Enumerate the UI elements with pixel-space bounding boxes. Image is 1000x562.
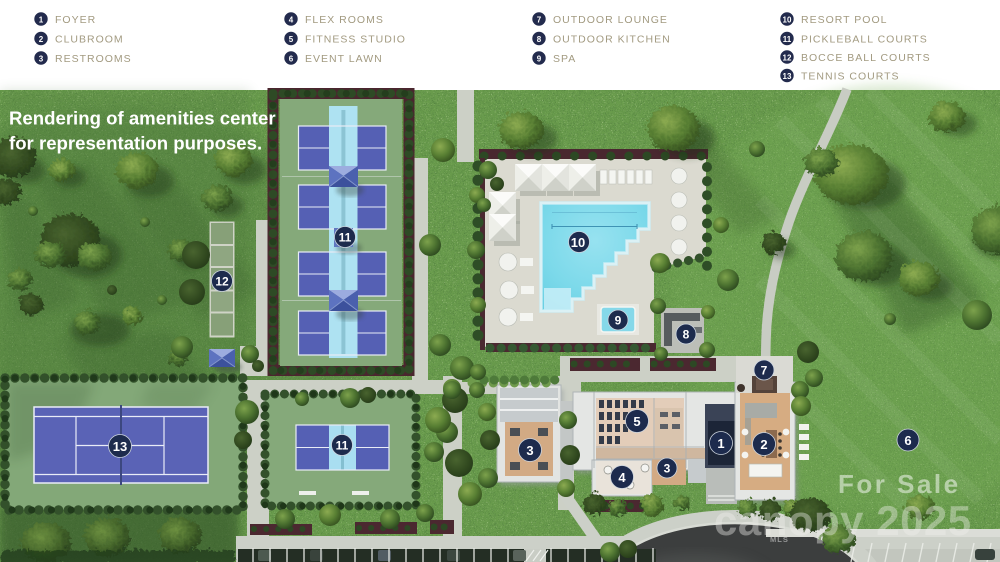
svg-text:Rendering of amenities center: Rendering of amenities center [9, 108, 276, 129]
svg-text:EVENT LAWN: EVENT LAWN [305, 53, 383, 65]
svg-text:9: 9 [615, 314, 622, 328]
svg-text:PICKLEBALL COURTS: PICKLEBALL COURTS [801, 34, 928, 46]
svg-text:4: 4 [618, 470, 626, 485]
svg-text:1: 1 [39, 16, 44, 25]
svg-text:6: 6 [904, 433, 911, 448]
svg-text:11: 11 [336, 439, 349, 453]
svg-text:12: 12 [215, 275, 229, 289]
svg-text:BOCCE BALL COURTS: BOCCE BALL COURTS [801, 52, 931, 64]
svg-text:For Sale: For Sale [838, 469, 961, 499]
svg-text:3: 3 [664, 462, 671, 476]
svg-text:10: 10 [783, 16, 792, 25]
svg-text:7: 7 [537, 16, 542, 25]
svg-text:8: 8 [537, 35, 542, 44]
svg-text:FITNESS STUDIO: FITNESS STUDIO [305, 34, 406, 46]
svg-text:7: 7 [761, 364, 768, 378]
svg-text:13: 13 [113, 439, 127, 454]
svg-text:1: 1 [717, 436, 724, 451]
svg-text:FLEX ROOMS: FLEX ROOMS [305, 14, 384, 26]
svg-text:5: 5 [633, 414, 640, 429]
svg-text:5: 5 [289, 35, 294, 44]
svg-text:2: 2 [39, 35, 44, 44]
svg-text:OUTDOOR KITCHEN: OUTDOOR KITCHEN [553, 34, 671, 46]
svg-text:canopy 2025: canopy 2025 [714, 497, 972, 544]
svg-text:11: 11 [339, 231, 352, 245]
svg-text:3: 3 [526, 443, 533, 458]
svg-text:4: 4 [289, 16, 294, 25]
svg-text:9: 9 [537, 55, 542, 64]
svg-text:3: 3 [39, 55, 44, 64]
svg-text:6: 6 [289, 55, 294, 64]
svg-text:13: 13 [783, 72, 792, 81]
svg-text:CLUBROOM: CLUBROOM [55, 34, 124, 46]
svg-text:FOYER: FOYER [55, 14, 96, 26]
svg-text:10: 10 [571, 235, 585, 250]
svg-text:11: 11 [783, 35, 792, 44]
svg-text:OUTDOOR LOUNGE: OUTDOOR LOUNGE [553, 14, 668, 26]
svg-text:MLS: MLS [770, 535, 789, 544]
svg-text:RESTROOMS: RESTROOMS [55, 53, 132, 65]
svg-text:RESORT POOL: RESORT POOL [801, 14, 887, 26]
svg-text:8: 8 [683, 328, 690, 342]
svg-text:for representation purposes.: for representation purposes. [9, 133, 262, 154]
svg-text:2: 2 [760, 437, 767, 452]
svg-text:12: 12 [783, 54, 792, 63]
svg-text:TENNIS COURTS: TENNIS COURTS [801, 71, 900, 83]
svg-text:SPA: SPA [553, 53, 576, 65]
